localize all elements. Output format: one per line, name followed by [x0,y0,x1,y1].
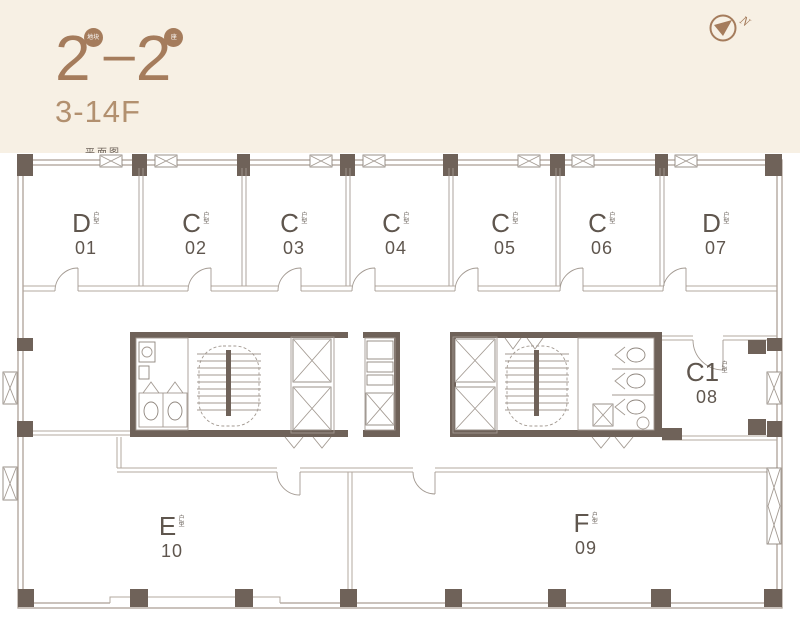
elevator-shaft-icon [455,387,495,430]
unit-label-c02: C户型 02 [182,210,210,257]
unit-label-c1-08: C1户型 08 [686,359,728,406]
unit-label-c04: C户型 04 [382,210,410,257]
window-icon [3,467,17,500]
plan-header: 2 地块 – 2 座 3-14F 平面图 [55,26,183,159]
unit-label-e10: E户型 10 [159,513,185,560]
tower-badge: 座 [164,28,183,47]
urinal-icon [139,366,149,379]
window-icon [572,155,594,167]
floor-range: 3-14F [55,94,183,130]
toilet-icon [168,402,182,420]
elevator-shaft-icon [455,339,495,382]
compass-north-label: N [736,12,754,31]
toilet-icon [627,374,645,388]
plan-title: 2 地块 – 2 座 [55,26,183,90]
unit-label-c05: C户型 05 [491,210,519,257]
elevator-shaft-icon [293,387,331,430]
toilet-icon [627,348,645,362]
sink-icon [139,342,155,362]
toilet-icon [144,402,158,420]
window-icon [518,155,540,167]
unit-label-d07: D户型 07 [702,210,730,257]
floor-plan: D户型 01 C户型 02 C户型 03 C户型 04 C户型 05 C户型 0… [0,153,800,622]
window-icon [100,155,122,167]
window-icon [363,155,385,167]
window-icon [767,372,781,404]
unit-label-f09: F户型 09 [574,510,599,557]
window-icon [155,155,177,167]
floor-plan-page: 2 地块 – 2 座 3-14F 平面图 N [0,0,800,622]
unit-label-d01: D户型 01 [72,210,100,257]
window-icon [3,372,17,404]
window-icon [675,155,697,167]
elevator-shaft-icon [366,393,394,425]
unit-label-c06: C户型 06 [588,210,616,257]
block-badge: 地块 [84,28,103,47]
window-icon [767,468,781,544]
window-icon [310,155,332,167]
center-service-shaft [365,338,395,430]
duct-icon [593,404,613,426]
toilet-icon [627,400,645,414]
elevator-shaft-icon [293,339,331,382]
compass-icon: N [695,4,765,57]
unit-label-c03: C户型 03 [280,210,308,257]
title-separator: – [104,26,135,82]
